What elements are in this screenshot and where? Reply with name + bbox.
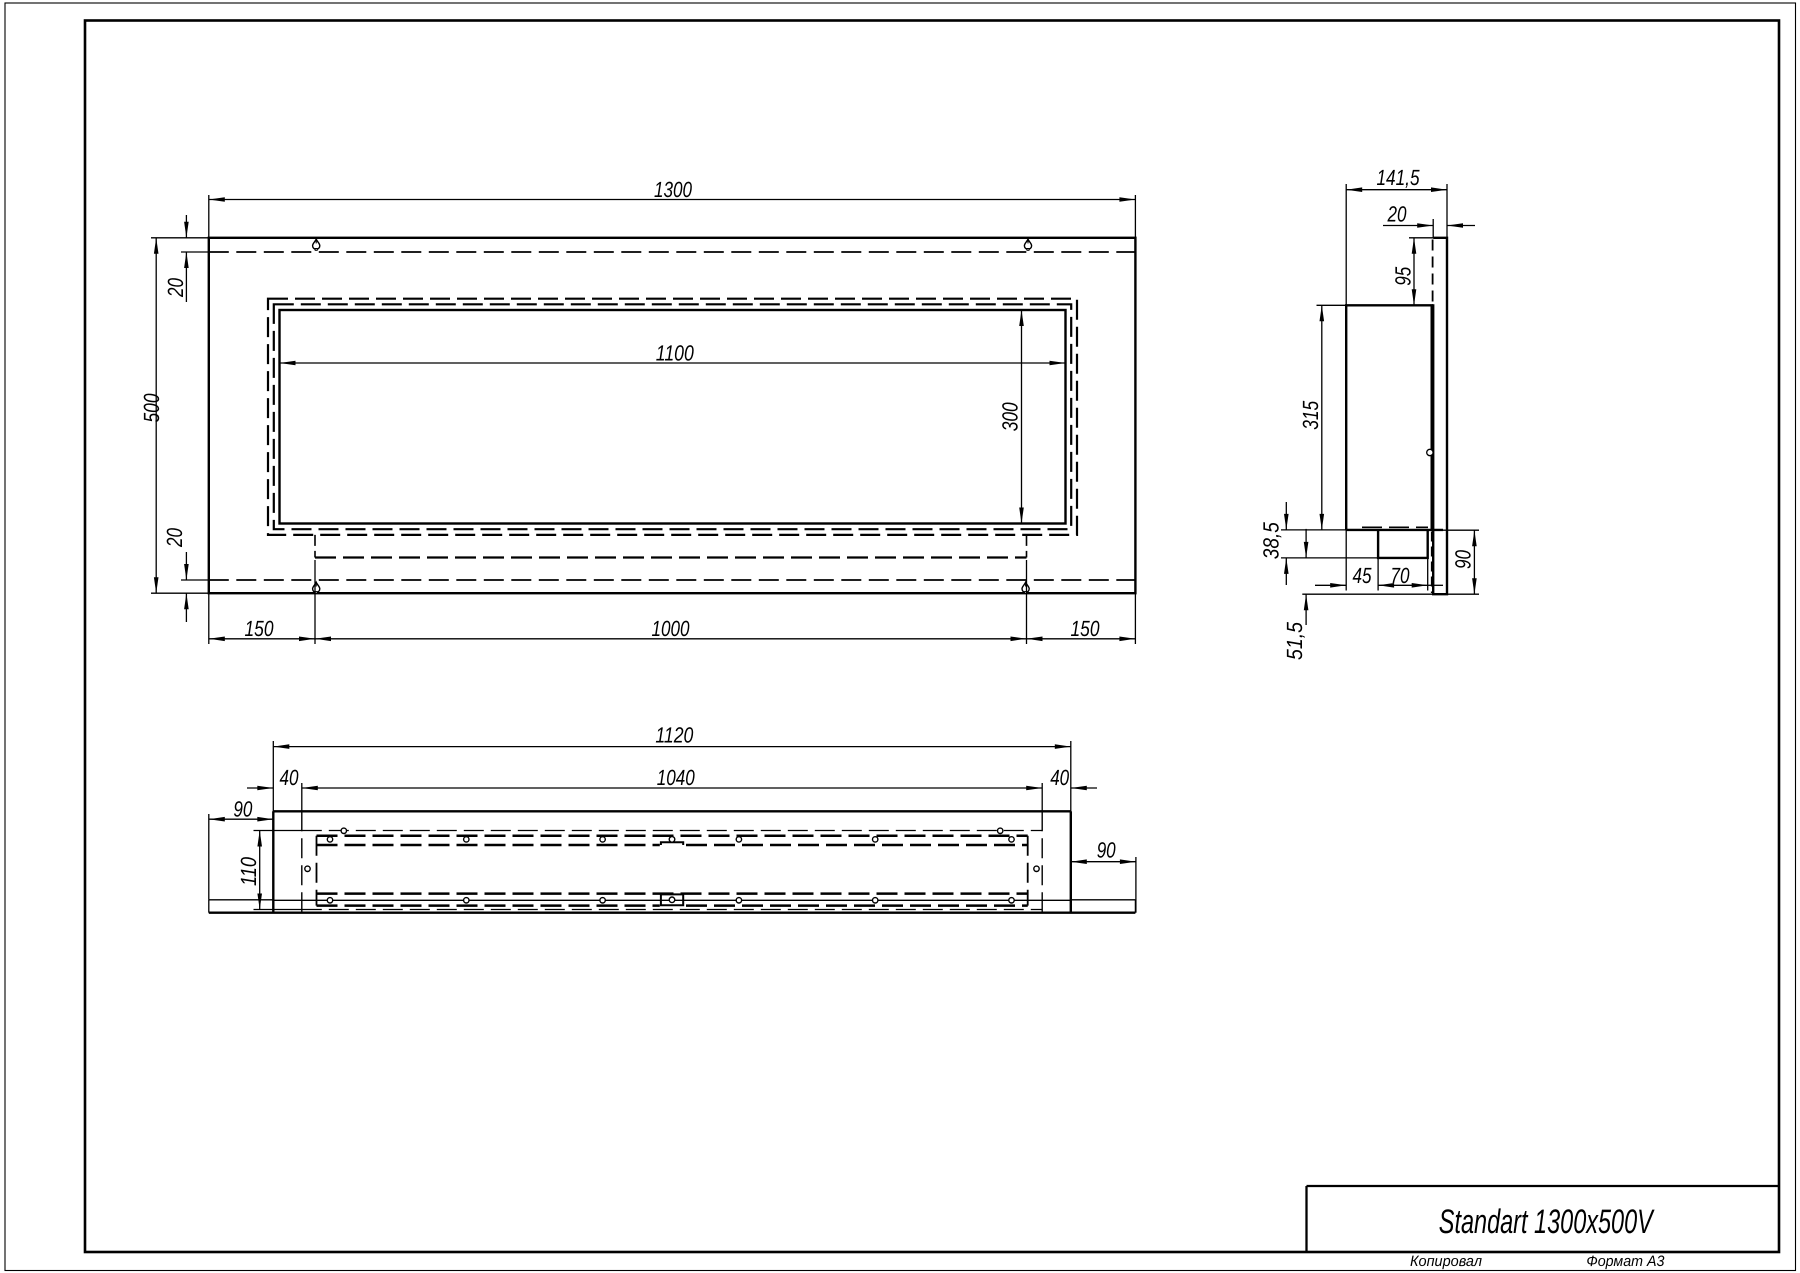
svg-text:300: 300: [998, 402, 1023, 432]
svg-text:20: 20: [1387, 201, 1407, 226]
svg-text:110: 110: [236, 856, 261, 886]
svg-text:40: 40: [280, 765, 300, 790]
svg-text:315: 315: [1298, 400, 1323, 430]
svg-text:1120: 1120: [655, 723, 694, 748]
svg-text:45: 45: [1353, 563, 1373, 588]
svg-text:90: 90: [1451, 549, 1476, 569]
svg-text:500: 500: [139, 393, 164, 423]
svg-text:1100: 1100: [656, 341, 695, 366]
svg-text:Формат А3: Формат А3: [1586, 1253, 1665, 1270]
svg-text:141,5: 141,5: [1377, 165, 1421, 190]
svg-text:Standart 1300x500V: Standart 1300x500V: [1439, 1203, 1655, 1241]
svg-text:90: 90: [233, 797, 253, 822]
svg-text:51,5: 51,5: [1282, 621, 1307, 660]
svg-text:95: 95: [1391, 266, 1416, 286]
svg-text:Копировал: Копировал: [1410, 1253, 1483, 1270]
svg-text:1300: 1300: [654, 177, 693, 202]
svg-text:90: 90: [1097, 838, 1117, 863]
svg-text:20: 20: [163, 277, 188, 297]
svg-text:150: 150: [1071, 616, 1101, 641]
svg-text:1000: 1000: [652, 616, 691, 641]
svg-text:40: 40: [1050, 765, 1070, 790]
svg-text:70: 70: [1391, 563, 1411, 588]
svg-text:150: 150: [245, 616, 275, 641]
svg-text:1040: 1040: [657, 765, 696, 790]
svg-text:20: 20: [162, 527, 187, 547]
svg-text:38,5: 38,5: [1259, 522, 1284, 560]
